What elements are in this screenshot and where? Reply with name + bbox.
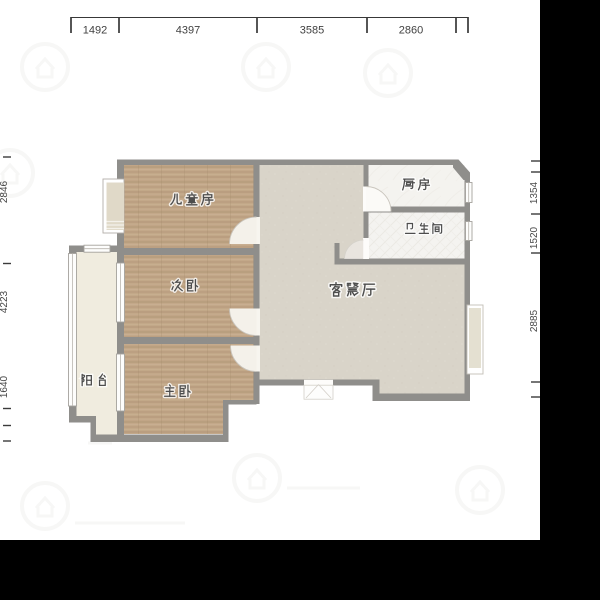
svg-text:1520: 1520 [529,226,540,249]
svg-text:1492: 1492 [83,25,107,37]
svg-text:2846: 2846 [0,180,10,203]
svg-text:1640: 1640 [0,375,10,398]
svg-text:4397: 4397 [176,25,200,37]
svg-text:1354: 1354 [529,181,540,204]
svg-text:4223: 4223 [0,290,10,313]
svg-text:3585: 3585 [300,25,324,37]
svg-text:2860: 2860 [399,25,423,37]
svg-text:2885: 2885 [529,309,540,332]
